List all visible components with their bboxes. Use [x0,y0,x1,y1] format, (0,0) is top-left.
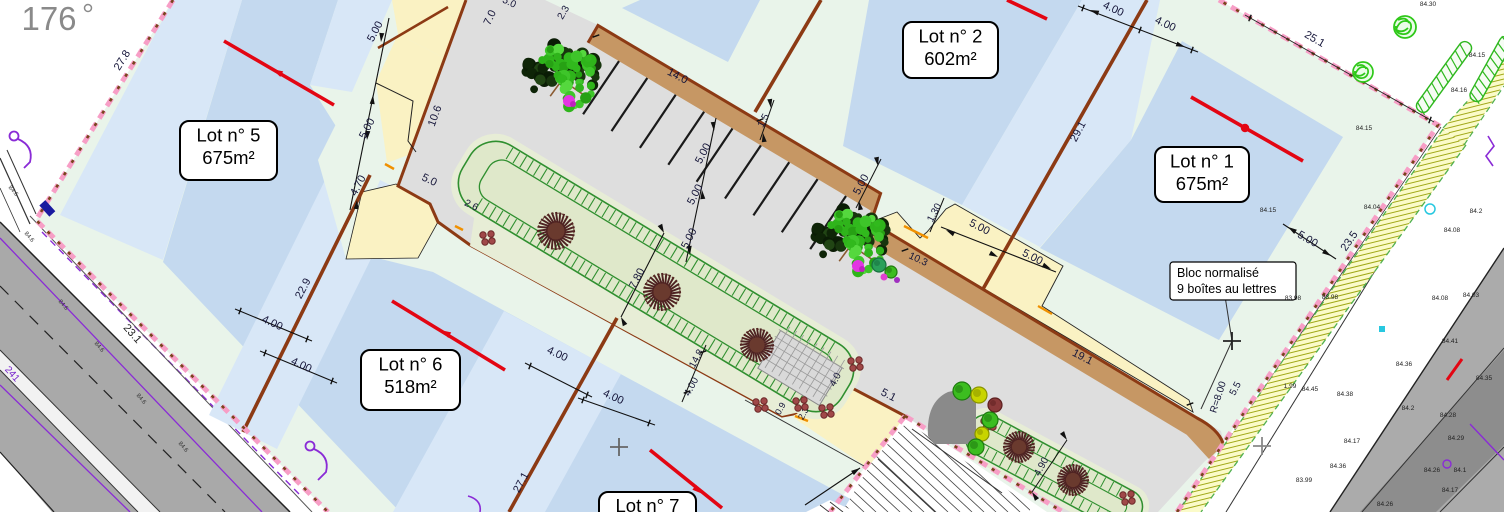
svg-text:84.29: 84.29 [1448,435,1465,442]
svg-text:84.17: 84.17 [1344,438,1361,445]
svg-text:84.26: 84.26 [1424,467,1441,474]
svg-text:84.26: 84.26 [1377,501,1394,508]
svg-text:84.2: 84.2 [1470,208,1483,215]
svg-text:Lot n° 7: Lot n° 7 [616,495,680,512]
svg-text:84.35: 84.35 [1476,375,1493,382]
svg-text:84.41: 84.41 [1442,338,1459,345]
svg-text:83.99: 83.99 [1296,477,1313,484]
svg-text:84.2: 84.2 [1402,405,1415,412]
svg-text:84.38: 84.38 [1337,391,1354,398]
svg-text:Lot n° 5: Lot n° 5 [197,125,261,146]
svg-text:84.08: 84.08 [1432,295,1449,302]
svg-text:675m²: 675m² [202,147,254,168]
svg-text:84.28: 84.28 [1440,412,1457,419]
svg-text:84.17: 84.17 [1442,487,1459,494]
svg-text:84.04: 84.04 [1364,204,1381,211]
svg-text:83.98: 83.98 [1322,294,1339,301]
svg-text:84.16: 84.16 [1451,87,1468,94]
svg-text:84.30: 84.30 [1420,1,1437,8]
svg-text:518m²: 518m² [384,376,436,397]
svg-text:Bloc normalisé: Bloc normalisé [1177,266,1259,280]
svg-text:9 boîtes au lettres: 9 boîtes au lettres [1177,282,1276,296]
svg-text:84.08: 84.08 [1444,227,1461,234]
svg-text:84.45: 84.45 [1302,386,1319,393]
svg-text:84.36: 84.36 [1396,361,1413,368]
svg-text:Lot n° 6: Lot n° 6 [379,354,443,375]
svg-text:84.15: 84.15 [1469,52,1486,59]
svg-text:675m²: 675m² [1176,173,1228,194]
svg-text:176: 176 [21,0,76,37]
svg-text:84.1: 84.1 [1454,467,1467,474]
svg-text:602m²: 602m² [924,48,976,69]
svg-text:Lot n° 2: Lot n° 2 [919,26,983,47]
svg-text:84.36: 84.36 [1330,463,1347,470]
svg-text:1.99: 1.99 [1284,383,1297,390]
svg-text:Lot n° 1: Lot n° 1 [1170,151,1234,172]
svg-text:84.15: 84.15 [1356,125,1373,132]
svg-text:84.03: 84.03 [1463,292,1480,299]
svg-text:84.15: 84.15 [1260,207,1277,214]
svg-text:83.98: 83.98 [1285,295,1302,302]
